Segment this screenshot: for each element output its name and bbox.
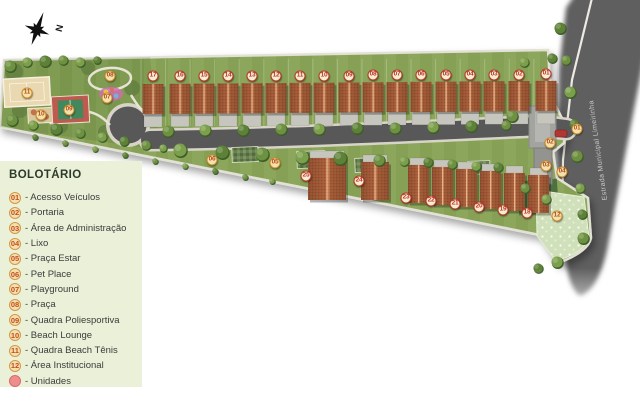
legend-label: - Playground [25,284,79,295]
legend-item-12: 12- Área Institucional [9,358,138,373]
legend-label: - Quadra Beach Tênis [25,345,118,356]
legend-label: - Lixo [25,238,48,249]
patio [530,168,547,175]
patio [506,166,523,173]
house-unit-07 [387,82,410,125]
roof-ridge [396,82,397,112]
house-unit-03 [484,81,507,124]
road-fade [520,268,640,343]
legend-label: - Praça Estar [25,253,80,264]
legend-num-circle: 12 [9,360,21,372]
legend-num-circle: 11 [9,345,21,357]
legend-num-circle: 02 [9,207,21,219]
compass-north-label: N [52,23,64,33]
house-unit-04 [460,81,483,124]
house-unit-09 [339,82,362,125]
roof-ridge [152,84,153,114]
legend-num-circle: 04 [9,238,21,250]
legend-label: - Portaria [25,207,64,218]
legend-item-unidades: - Unidades [9,374,138,389]
units-dot [9,375,21,387]
legend-num-circle: 07 [9,283,21,295]
playground [99,87,123,101]
house-unit-11 [290,83,313,126]
legend-num-circle: 05 [9,253,21,265]
legend-num-circle: 01 [9,192,21,204]
legend-item-04: 04- Lixo [9,236,138,251]
legend-num-circle: 09 [9,314,21,326]
roof-ridge [179,84,180,114]
turnaround [110,107,147,144]
roof-ridge [490,171,491,209]
legend-item-02: 02- Portaria [9,205,138,220]
house-unit-17 [143,84,166,127]
roof-ridge [227,83,228,113]
house-unit-06 [411,82,434,125]
roof-ridge [323,83,324,113]
legend-panel: BOLOTÁRIO 01- Acesso Veículos02- Portari… [0,161,142,387]
roof-ridge [518,81,519,111]
roof-ridge [275,83,276,113]
roof-ridge [299,83,300,113]
roof-ridge [203,84,204,114]
beach-tennis-court [3,77,50,107]
roof-ridge [374,162,375,200]
roof-ridge [466,169,467,207]
legend-item-03: 03- Área de Administração [9,221,138,236]
roof-ridge [514,173,515,211]
house-unit-01 [536,81,559,124]
roof-ridge [538,175,539,213]
roof-ridge [418,165,419,203]
compass-icon: N [25,12,65,45]
legend-label: - Acesso Veículos [25,192,100,203]
legend-title: BOLOTÁRIO [9,169,138,181]
house-unit-13 [242,83,265,126]
sports-court [51,95,89,124]
legend-num-circle: 06 [9,268,21,280]
legend-label: - Pet Place [25,269,71,280]
legend-label: - Área de Administração [25,223,126,234]
car [555,130,567,137]
roof-ridge [420,82,421,112]
roof-ridge [251,83,252,113]
roof-ridge [545,81,546,111]
legend-label: - Unidades [25,376,71,387]
legend-num-circle: 10 [9,329,21,341]
house-unit-15 [194,84,217,127]
roof-ridge [445,82,446,112]
roof-ridge [348,82,349,112]
house-unit-14 [218,83,241,126]
legend-item-01: 01- Acesso Veículos [9,190,138,205]
house-unit-16 [170,84,193,127]
house-unit-05 [436,82,459,125]
house-unit-12 [266,83,289,126]
masterplan-canvas: Estrada Municipal Limeirinha [0,0,640,410]
legend-item-06: 06- Pet Place [9,266,138,281]
legend-label: - Beach Lounge [25,330,92,341]
legend-item-07: 07- Playground [9,282,138,297]
roof-ridge [493,81,494,111]
house-unit-10 [314,83,337,126]
legend-label: - Área Institucional [25,360,104,371]
legend-item-11: 11- Quadra Beach Tênis [9,343,138,358]
roof-ridge [469,81,470,111]
roof-ridge [372,82,373,112]
house-unit-18 [528,168,551,216]
legend-num-circle: 03 [9,222,21,234]
legend-item-08: 08- Praça [9,297,138,312]
roof-ridge [326,158,327,200]
legend-num-circle: 08 [9,299,21,311]
roof-ridge [442,167,443,205]
legend-rows: 01- Acesso Veículos02- Portaria03- Área … [9,190,138,389]
legend-item-09: 09- Quadra Poliesportiva [9,312,138,327]
legend-item-05: 05- Praça Estar [9,251,138,266]
house-unit-08 [363,82,386,125]
legend-label: - Quadra Poliesportiva [25,315,120,326]
legend-item-10: 10- Beach Lounge [9,328,138,343]
legend-label: - Praça [25,299,56,310]
